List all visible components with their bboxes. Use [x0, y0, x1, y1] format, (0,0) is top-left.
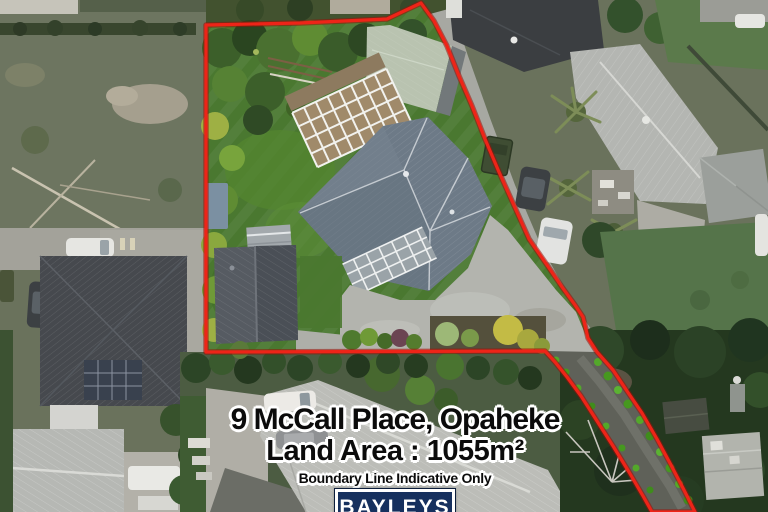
car-white-right-edge: [755, 214, 768, 256]
small-grey-roof-right: [700, 149, 768, 223]
address-line: 9 McCall Place, Opaheke: [11, 404, 768, 435]
car-white-topright: [735, 14, 765, 28]
listing-aerial-photo: 9 McCall Place, Opaheke Land Area : 1055…: [0, 0, 768, 512]
caption-overlay: 9 McCall Place, Opaheke Land Area : 1055…: [11, 404, 768, 512]
van-green-left: [0, 270, 14, 302]
bayleys-logo: BAYLEYS: [335, 489, 455, 512]
car-white-left: [66, 238, 114, 257]
land-area-line: Land Area : 1055m²: [11, 436, 768, 466]
shed-dark: [214, 245, 298, 344]
disclaimer-line: Boundary Line Indicative Only: [11, 470, 768, 486]
solar-panels: [84, 360, 142, 400]
